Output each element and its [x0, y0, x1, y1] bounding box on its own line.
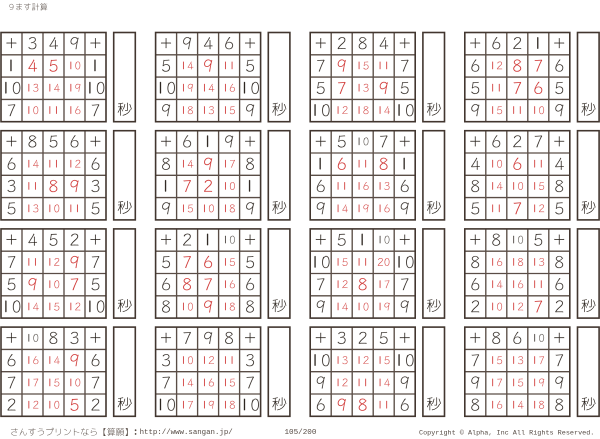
svg-text:105/200: 105/200	[285, 429, 317, 437]
svg-text:http://www.sangan.jp/: http://www.sangan.jp/	[140, 429, 234, 437]
svg-text:Copyright © Alpha, Inc All Rig: Copyright © Alpha, Inc All Rights Reserv…	[419, 429, 594, 438]
